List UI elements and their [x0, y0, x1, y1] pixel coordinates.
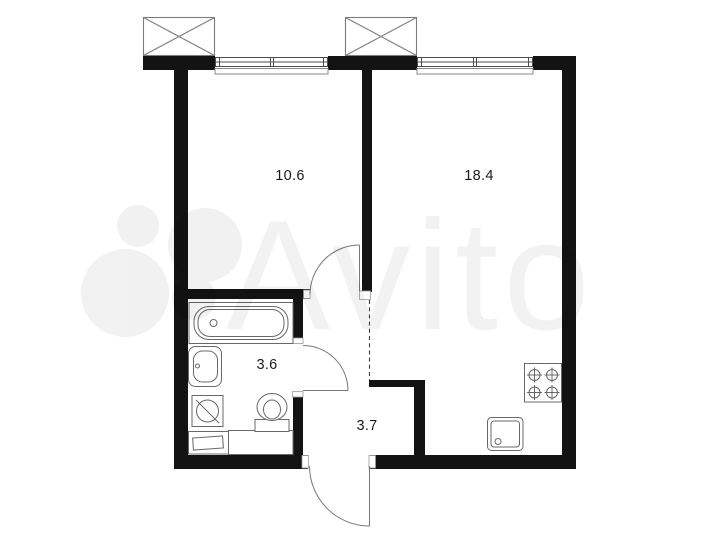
room-area-label-kitchen-living: 18.4	[464, 168, 493, 184]
room-area-label-bathroom: 3.6	[256, 357, 277, 373]
bathroom-door-arc	[303, 346, 348, 391]
window-1	[215, 58, 328, 75]
kitchen-sink-icon	[488, 418, 524, 451]
vent-box-1	[144, 18, 215, 56]
toilet-counter-icon	[229, 431, 294, 455]
bathtub-icon	[189, 303, 293, 344]
door-jamb-marks	[293, 290, 376, 468]
stove-icon	[525, 364, 562, 403]
bathroom-sink-icon	[189, 347, 222, 387]
washing-machine-icon	[192, 396, 223, 427]
room-area-label-hallway: 3.7	[356, 418, 377, 434]
toilet-icon	[255, 394, 289, 432]
floor-plan-drawing	[0, 0, 720, 540]
floor-plan-image: Avito 10.6 18.4 3.6 3.7	[0, 0, 720, 540]
bathroom-cabinet-icon	[189, 432, 229, 455]
room-door-arc	[310, 245, 360, 295]
vent-box-2	[346, 18, 417, 56]
window-2	[417, 58, 533, 75]
entrance-door-arc	[310, 466, 370, 526]
room-area-label-room: 10.6	[275, 168, 304, 184]
